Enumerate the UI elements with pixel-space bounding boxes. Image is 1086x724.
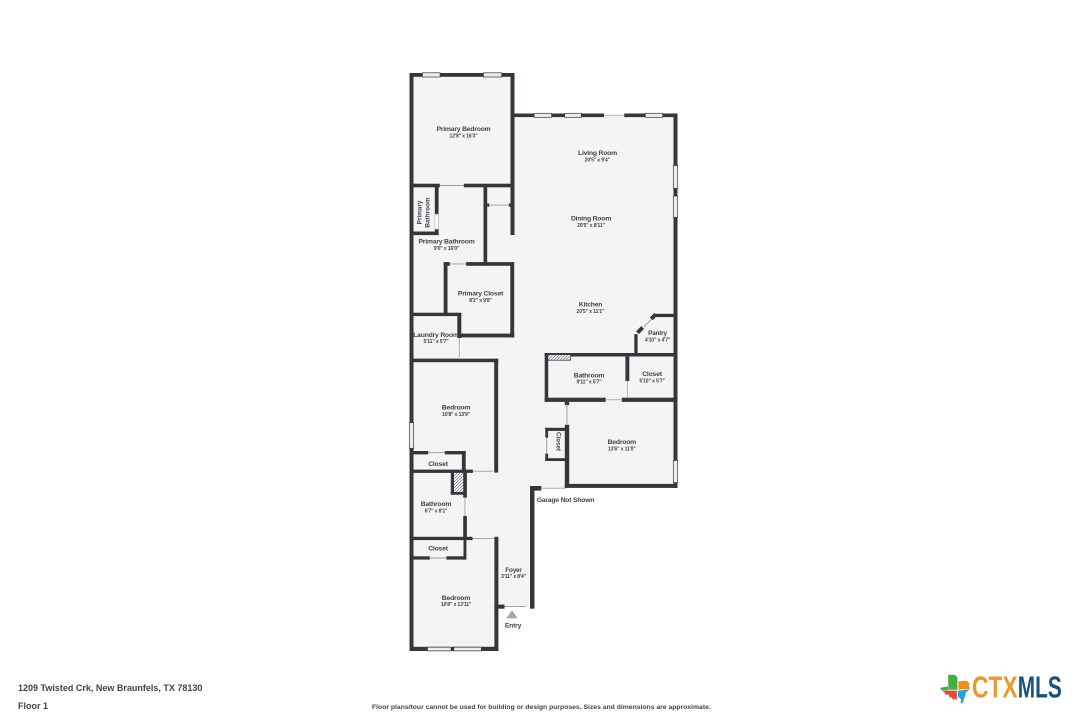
svg-text:9'0" x 16'0": 9'0" x 16'0" [434, 246, 460, 252]
svg-text:Dining Room: Dining Room [571, 216, 611, 223]
svg-text:CTX: CTX [972, 671, 1018, 705]
svg-text:Bedroom: Bedroom [442, 595, 471, 602]
svg-text:3'11" x 8'4": 3'11" x 8'4" [501, 574, 527, 580]
svg-text:20'5" x 8'11": 20'5" x 8'11" [577, 223, 605, 229]
svg-text:Primary Bathroom: Primary Bathroom [418, 239, 474, 246]
svg-text:6'7" x 8'1": 6'7" x 8'1" [425, 509, 448, 515]
svg-text:4'10" x 4'7": 4'10" x 4'7" [645, 337, 671, 343]
svg-text:5'11" x 5'7": 5'11" x 5'7" [424, 339, 450, 345]
svg-text:20'5" x 9'4": 20'5" x 9'4" [585, 157, 611, 163]
svg-text:Bathroom: Bathroom [574, 372, 605, 379]
svg-text:12'8" x 16'3": 12'8" x 16'3" [450, 134, 479, 140]
svg-text:Bedroom: Bedroom [442, 404, 471, 411]
svg-text:PrimaryBathroom: PrimaryBathroom [416, 197, 431, 227]
svg-text:Laundry Room: Laundry Room [413, 332, 459, 339]
svg-text:8'2" x 9'8": 8'2" x 9'8" [469, 298, 492, 304]
svg-text:Living Room: Living Room [578, 150, 617, 157]
svg-text:Kitchen: Kitchen [579, 302, 603, 309]
svg-text:Closet: Closet [555, 432, 562, 451]
svg-text:Primary Bedroom: Primary Bedroom [436, 126, 490, 133]
svg-text:Closet: Closet [428, 545, 449, 552]
svg-text:Closet: Closet [642, 371, 663, 378]
svg-text:Bedroom: Bedroom [608, 439, 637, 446]
svg-text:Foyer: Foyer [505, 567, 522, 574]
svg-text:Pantry: Pantry [648, 330, 667, 337]
svg-text:13'6" x 11'0": 13'6" x 11'0" [608, 446, 636, 452]
svg-text:Garage Not Shown: Garage Not Shown [537, 497, 595, 504]
svg-text:9'11" x 5'7": 9'11" x 5'7" [577, 380, 603, 386]
svg-text:Entry: Entry [505, 622, 522, 629]
svg-text:10'8" x 13'9": 10'8" x 13'9" [442, 412, 471, 418]
svg-text:Primary Closet: Primary Closet [458, 291, 504, 298]
svg-text:Bathroom: Bathroom [421, 501, 452, 508]
svg-text:20'5" x 11'1": 20'5" x 11'1" [577, 309, 605, 315]
svg-text:10'8" x 13'11": 10'8" x 13'11" [441, 602, 472, 608]
svg-text:MLS: MLS [1018, 671, 1062, 705]
svg-text:5'10" x 5'7": 5'10" x 5'7" [639, 378, 665, 384]
svg-text:Closet: Closet [428, 461, 449, 468]
